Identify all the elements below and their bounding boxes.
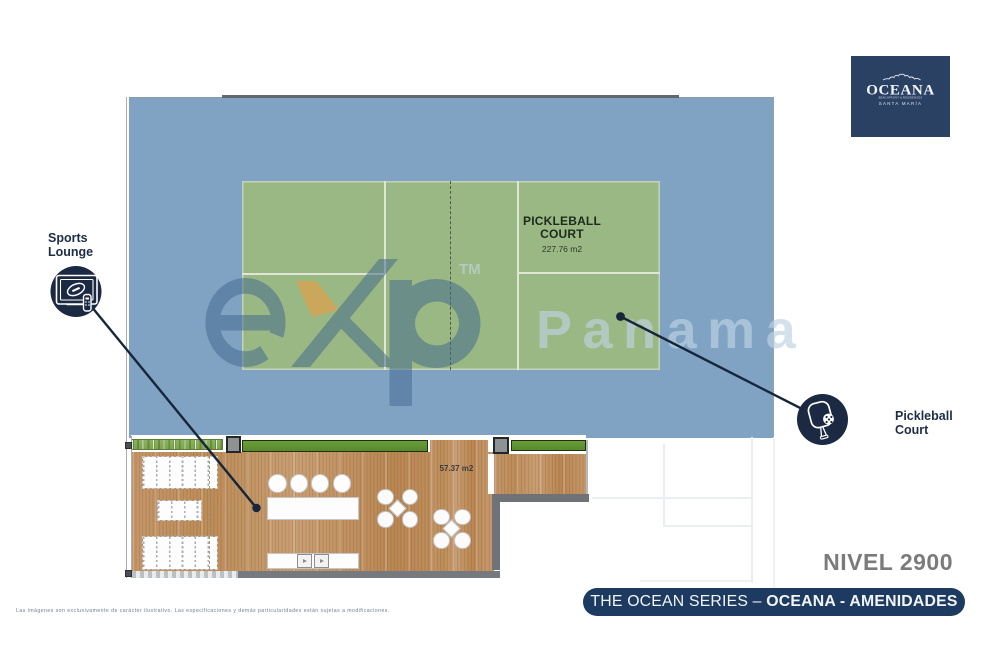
svg-text:TM: TM <box>459 261 481 278</box>
svg-text:BEACHFRONT & RESIDENCES: BEACHFRONT & RESIDENCES <box>879 96 923 100</box>
svg-text:SANTA MARÍA: SANTA MARÍA <box>879 101 923 106</box>
svg-text:Panama: Panama <box>536 300 806 360</box>
